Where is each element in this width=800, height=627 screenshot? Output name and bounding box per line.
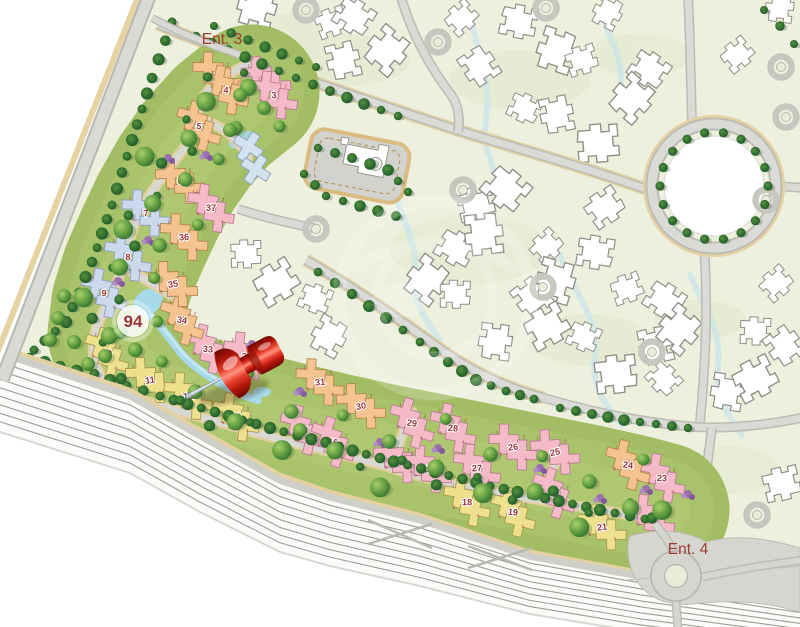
svg-text:2: 2: [222, 197, 225, 202]
building-number: 30: [355, 400, 367, 412]
building-number: 3: [271, 90, 276, 100]
building-number: 18: [462, 497, 472, 507]
master-plan-map: 1234112342123431234412345123461234712348…: [0, 0, 800, 627]
svg-text:3: 3: [197, 211, 200, 216]
building-number: 35: [167, 278, 179, 290]
svg-text:3: 3: [222, 420, 225, 425]
svg-text:1: 1: [196, 189, 199, 194]
building-number: 33: [203, 344, 214, 355]
building-number: 21: [596, 522, 608, 533]
building-number: 23: [657, 473, 668, 483]
building-number: 9: [101, 288, 107, 298]
svg-text:4: 4: [221, 219, 224, 224]
building-number: 25: [549, 446, 561, 458]
entrance3-label: Ent. 3: [202, 31, 243, 48]
building-number: 8: [125, 252, 130, 262]
building-number: 29: [406, 418, 418, 429]
building-number: 19: [507, 507, 518, 518]
building-number: 26: [507, 442, 518, 453]
svg-text:2: 2: [247, 406, 250, 411]
building-number: 36: [178, 232, 189, 243]
master-plan-screenshot: 1234112342123431234412345123461234712348…: [0, 0, 800, 627]
svg-text:4: 4: [246, 428, 249, 433]
plot-number-badge: 94: [124, 312, 143, 331]
building-number: 11: [144, 374, 155, 386]
villa-footprint: [440, 280, 470, 308]
entrance4-label: Ent. 4: [668, 541, 709, 558]
building-number: 31: [314, 377, 325, 388]
building-number: 27: [472, 463, 483, 473]
building-number: 37: [206, 203, 216, 213]
